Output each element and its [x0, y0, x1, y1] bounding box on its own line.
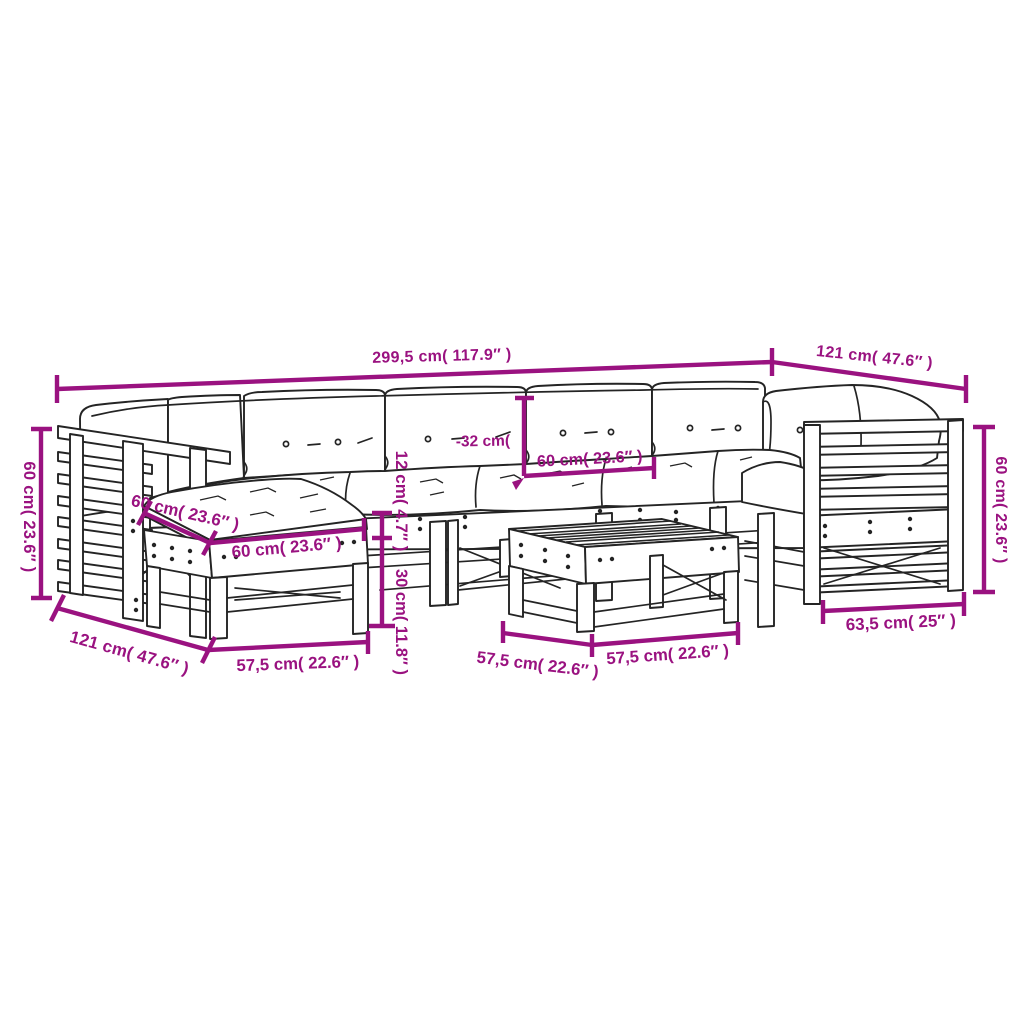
- svg-text:-32 cm(: -32 cm(: [456, 433, 511, 451]
- svg-text:30 cm( 11.8″ ): 30 cm( 11.8″ ): [392, 569, 410, 675]
- svg-text:60 cm( 23.6″ ): 60 cm( 23.6″ ): [20, 461, 38, 572]
- svg-text:12 cm( 4.7″ ): 12 cm( 4.7″ ): [392, 451, 411, 552]
- svg-text:60 cm( 23.6″ ): 60 cm( 23.6″ ): [992, 456, 1009, 563]
